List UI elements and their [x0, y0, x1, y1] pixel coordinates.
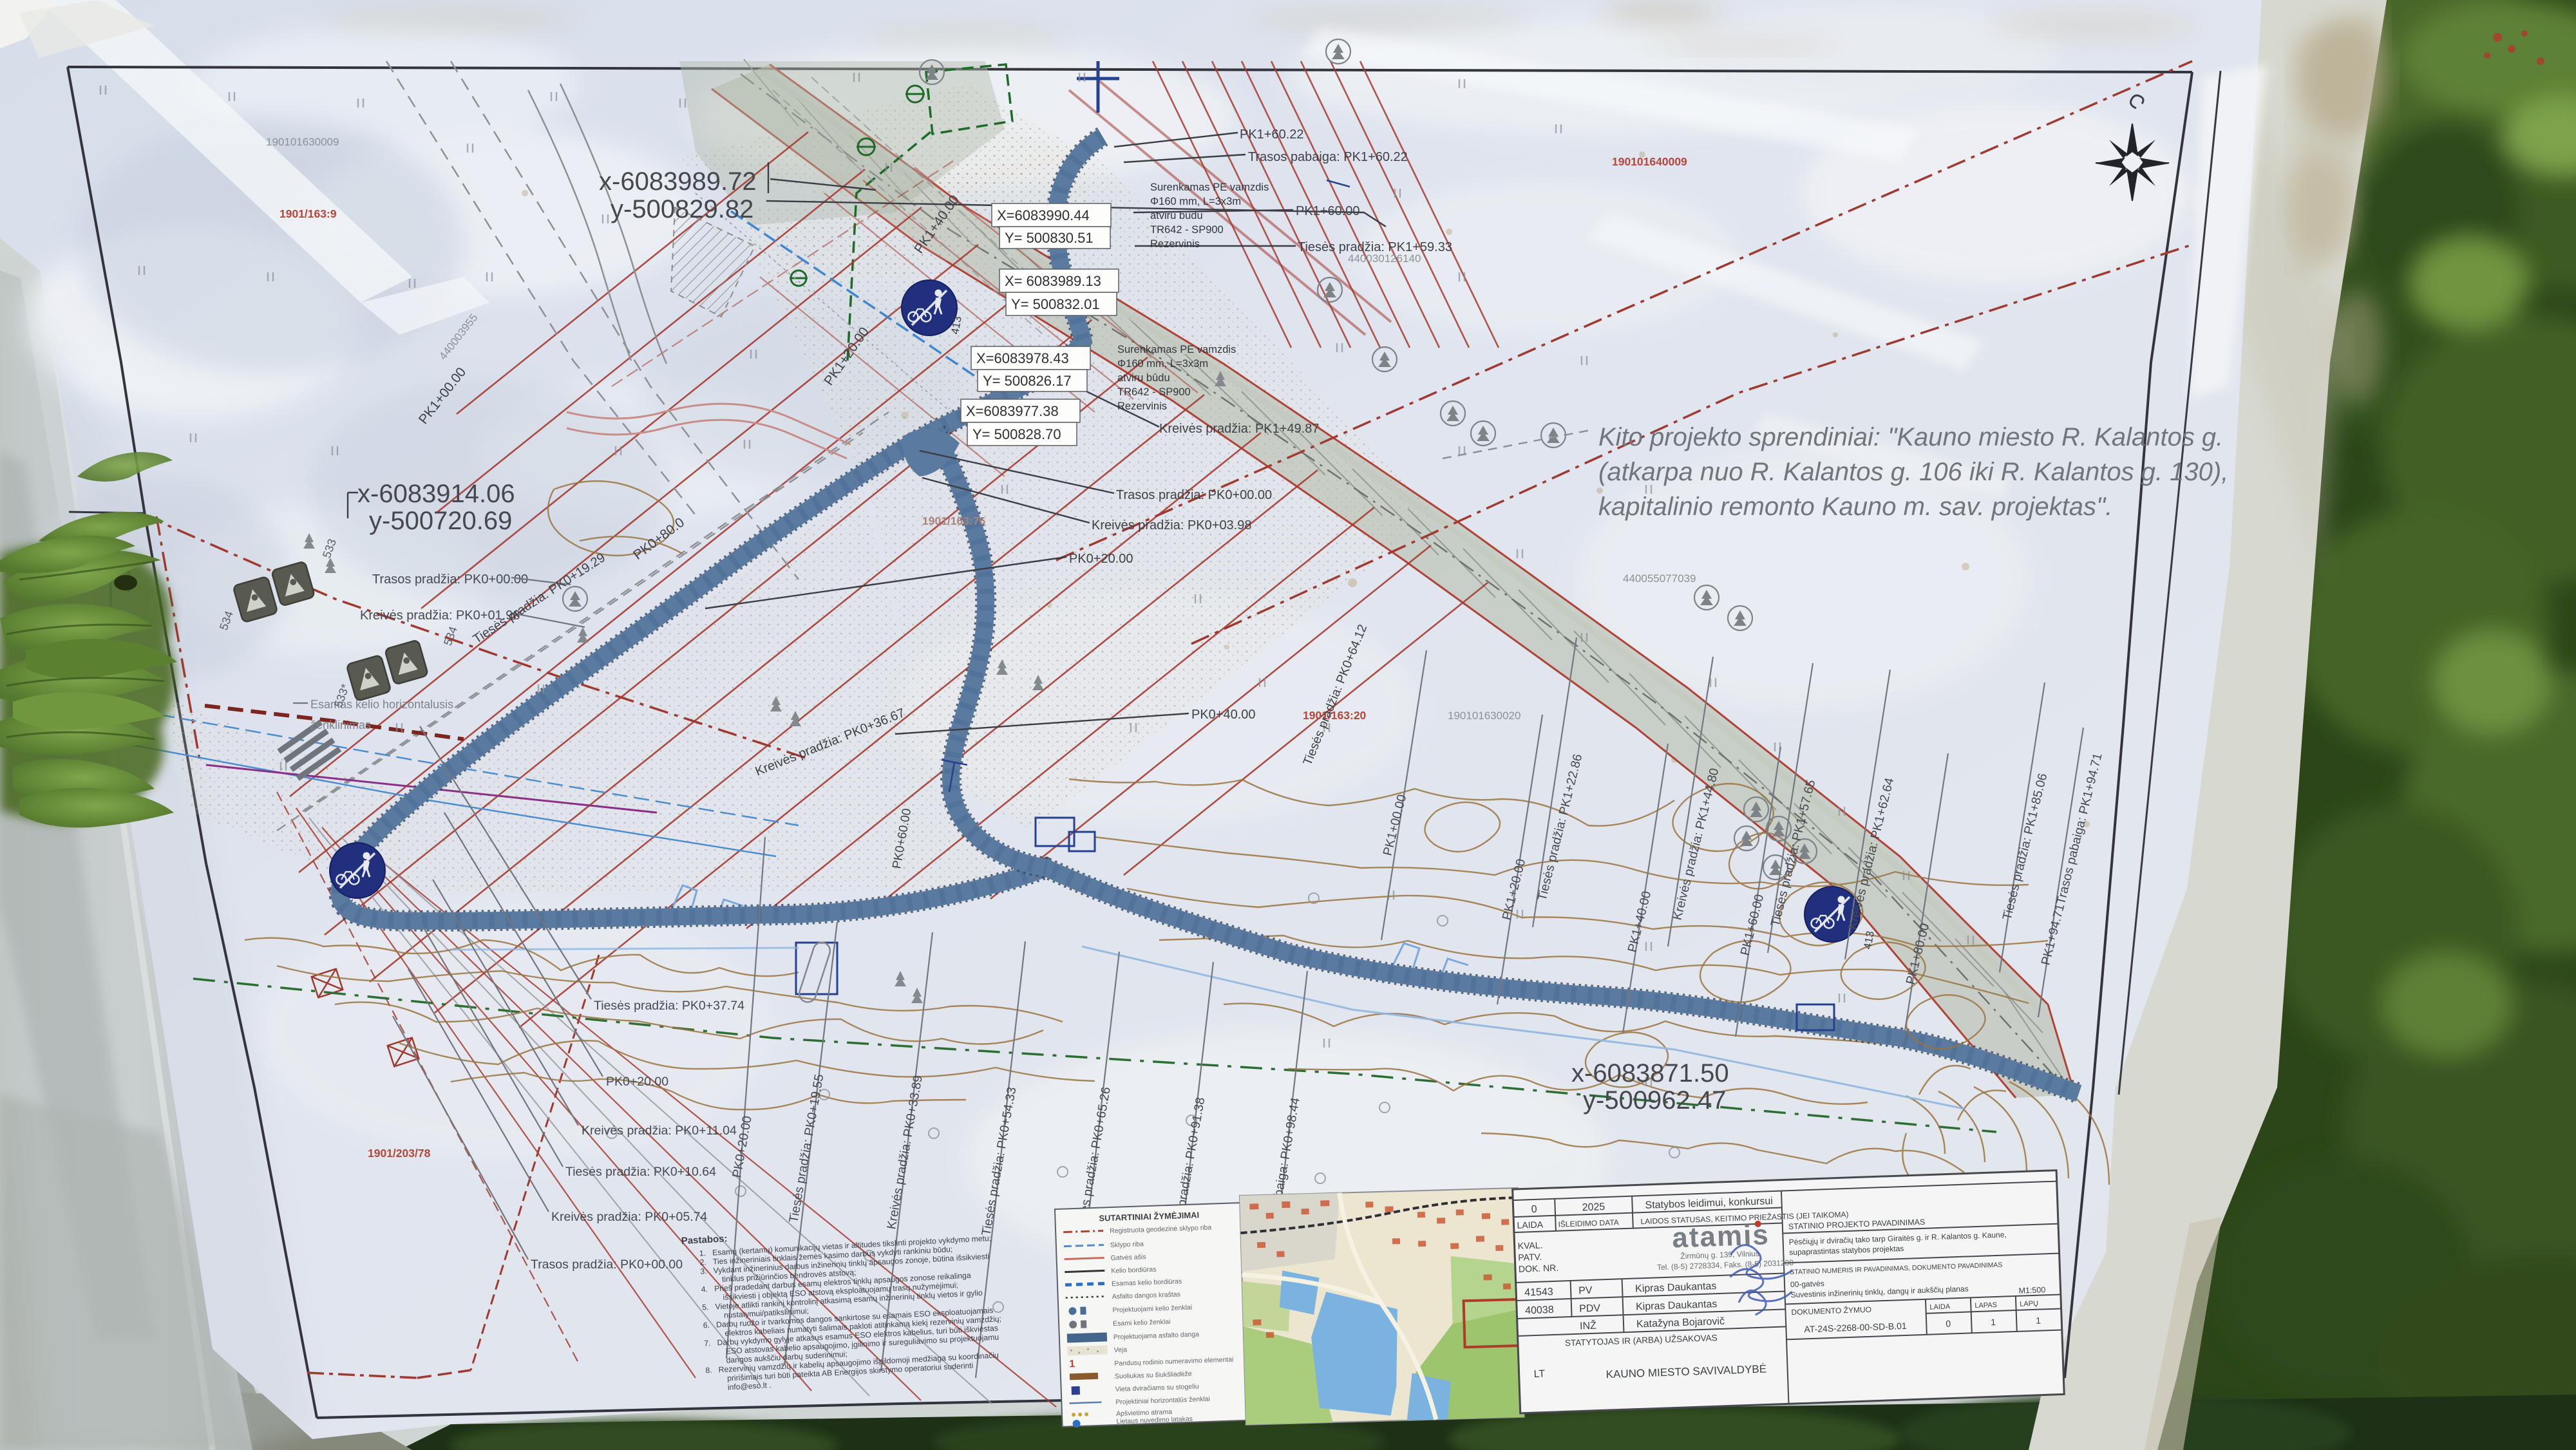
svg-text:ženklinimas: ženklinimas [310, 719, 371, 731]
svg-text:PDV: PDV [1579, 1303, 1601, 1314]
svg-text:190101630009: 190101630009 [266, 136, 339, 148]
svg-text:PK1+60.00: PK1+60.00 [1296, 204, 1360, 218]
svg-text:Y= 500826.17: Y= 500826.17 [983, 373, 1072, 389]
svg-text:190101640009: 190101640009 [1612, 155, 1687, 168]
svg-text:Kelio bordiūras: Kelio bordiūras [1111, 1266, 1156, 1275]
svg-text:atviru būdu: atviru būdu [1150, 210, 1203, 221]
svg-text:Trasos pabaiga: PK1+60.22: Trasos pabaiga: PK1+60.22 [1248, 150, 1408, 164]
svg-text:Trasos pradžia: PK0+00.00: Trasos pradžia: PK0+00.00 [1116, 488, 1272, 502]
svg-text:Y= 500832.01: Y= 500832.01 [1011, 296, 1100, 312]
svg-text:PK0+20.00: PK0+20.00 [606, 1075, 668, 1089]
svg-text:1: 1 [2036, 1315, 2041, 1326]
svg-text:x-6083871.50: x-6083871.50 [1571, 1059, 1729, 1087]
svg-text:x-6083914.06: x-6083914.06 [357, 480, 515, 508]
svg-text:Gatvės ašis: Gatvės ašis [1110, 1253, 1146, 1262]
svg-text:0: 0 [1531, 1204, 1537, 1215]
svg-text:INŽ: INŽ [1580, 1319, 1597, 1332]
svg-text:Rezervinis: Rezervinis [1150, 238, 1200, 250]
svg-text:Trasos pradžia: PK0+00.00: Trasos pradžia: PK0+00.00 [531, 1257, 683, 1272]
svg-text:0: 0 [1946, 1318, 1951, 1328]
svg-text:LAIDA: LAIDA [1517, 1219, 1544, 1230]
svg-text:(atkarpa nuo R. Kalantos g. 10: (atkarpa nuo R. Kalantos g. 106 iki R. K… [1598, 458, 2228, 486]
svg-text:y-500829.82: y-500829.82 [611, 195, 753, 223]
svg-text:Veja: Veja [1113, 1346, 1127, 1354]
svg-text:TR642 - SP900: TR642 - SP900 [1150, 224, 1224, 236]
svg-text:Kreivės pradžia: PK0+05.74: Kreivės pradžia: PK0+05.74 [551, 1210, 707, 1224]
svg-text:PV: PV [1578, 1285, 1593, 1297]
svg-text:LAIDA: LAIDA [1929, 1303, 1951, 1311]
svg-text:40038: 40038 [1525, 1304, 1554, 1317]
svg-text:Kreivės pradžia: PK0+11.04: Kreivės pradžia: PK0+11.04 [582, 1124, 737, 1138]
svg-text:LAPAS: LAPAS [1975, 1301, 1997, 1310]
svg-text:1901/203/78: 1901/203/78 [368, 1147, 431, 1160]
svg-text:TR642 - SP900: TR642 - SP900 [1117, 386, 1191, 398]
svg-text:X=6083990.44: X=6083990.44 [997, 207, 1090, 223]
svg-text:41543: 41543 [1524, 1286, 1553, 1299]
svg-text:1901/163:76: 1901/163:76 [922, 514, 986, 527]
svg-text:Y= 500828.70: Y= 500828.70 [972, 426, 1061, 442]
svg-text:atviru būdu: atviru būdu [1117, 372, 1170, 384]
svg-text:Trasos pradžia: PK0+00.00: Trasos pradžia: PK0+00.00 [372, 572, 528, 587]
svg-text:2025: 2025 [1582, 1201, 1605, 1213]
svg-text:kapitalinio remonto Kauno m. s: kapitalinio remonto Kauno m. sav. projek… [1598, 493, 2112, 521]
svg-text:PK0+40.00: PK0+40.00 [1191, 708, 1256, 722]
svg-text:X= 6083989.13: X= 6083989.13 [1005, 273, 1101, 289]
svg-text:1: 1 [1991, 1317, 1996, 1327]
svg-text:LAPŲ: LAPŲ [2020, 1300, 2038, 1308]
svg-text:1901/163:9: 1901/163:9 [279, 207, 337, 220]
svg-text:y-500720.69: y-500720.69 [369, 507, 512, 535]
svg-text:LT: LT [1533, 1369, 1545, 1380]
svg-text:190101630020: 190101630020 [1448, 710, 1520, 722]
svg-text:PATV.: PATV. [1518, 1252, 1542, 1263]
svg-text:Kreivės pradžia: PK1+49.87: Kreivės pradžia: PK1+49.87 [1159, 422, 1320, 436]
svg-text:00-gatvės: 00-gatvės [1790, 1279, 1824, 1289]
svg-text:M1:500: M1:500 [2018, 1285, 2045, 1295]
svg-text:KVAL.: KVAL. [1517, 1240, 1542, 1251]
svg-text:DOK. NR.: DOK. NR. [1519, 1263, 1559, 1274]
svg-text:440055077039: 440055077039 [1623, 572, 1696, 585]
svg-text:X=6083978.43: X=6083978.43 [976, 350, 1069, 366]
svg-text:Sklypo riba: Sklypo riba [1110, 1240, 1144, 1249]
svg-text:Tiesės pradžia: PK0+10.64: Tiesės pradžia: PK0+10.64 [565, 1165, 716, 1179]
svg-text:Surenkamas PE vamzdis: Surenkamas PE vamzdis [1150, 182, 1269, 193]
svg-text:x-6083989.72: x-6083989.72 [599, 167, 757, 196]
svg-text:1: 1 [1069, 1359, 1075, 1370]
svg-text:y-500962.47: y-500962.47 [1583, 1086, 1726, 1115]
svg-text:PK1+60.22: PK1+60.22 [1240, 127, 1304, 142]
svg-text:Y= 500830.51: Y= 500830.51 [1005, 230, 1094, 246]
svg-text:Rezervinis: Rezervinis [1117, 400, 1167, 412]
svg-text:Tiesės pradžia: PK0+37.74: Tiesės pradžia: PK0+37.74 [594, 999, 744, 1013]
svg-text:Tiesės pradžia: PK1+59.33: Tiesės pradžia: PK1+59.33 [1298, 240, 1452, 254]
svg-text:Φ160 mm, L=3x3m: Φ160 mm, L=3x3m [1150, 196, 1241, 207]
svg-text:Surenkamas PE vamzdis: Surenkamas PE vamzdis [1117, 344, 1236, 355]
svg-text:X=6083977.38: X=6083977.38 [966, 403, 1059, 419]
svg-text:Kito projekto sprendiniai: "Ka: Kito projekto sprendiniai: "Kauno miesto… [1598, 423, 2223, 451]
svg-text:Φ160 mm, L=3x3m: Φ160 mm, L=3x3m [1117, 358, 1208, 370]
svg-text:PK0+20.00: PK0+20.00 [1069, 552, 1133, 566]
svg-text:Kreivės pradžia: PK0+03.98: Kreivės pradžia: PK0+03.98 [1092, 518, 1252, 532]
